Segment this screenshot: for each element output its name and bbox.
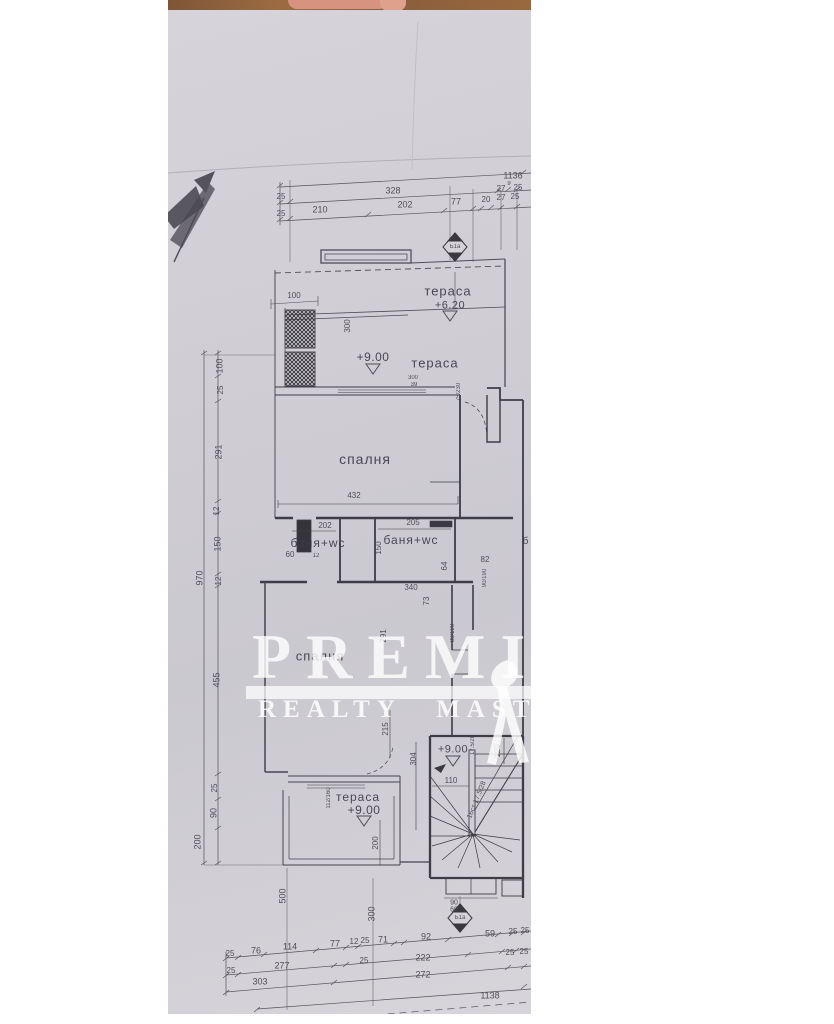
floorplan-photo: терасатерасаспалнябаня+wcбаня+wcспалняте… <box>168 0 531 1014</box>
lower-room-walls <box>265 582 430 865</box>
dim-label: 25 <box>227 967 236 975</box>
dim-label: 25 <box>509 928 518 936</box>
room-label: тераса <box>424 285 471 298</box>
level-label: +9.00 <box>348 804 381 816</box>
dim-label: 300 <box>344 319 352 332</box>
dim-label: 27 <box>497 185 506 193</box>
room-label: баня+wc <box>383 534 438 546</box>
room-label: тераса <box>336 791 380 803</box>
paper-creases <box>168 22 531 173</box>
dim-label: 12 <box>213 507 221 516</box>
dim-label: 25 <box>226 950 235 958</box>
floorplan-linework <box>168 10 531 1014</box>
dim-label: 328 <box>385 187 400 196</box>
dim-label: 25 <box>277 210 286 218</box>
finger-blob <box>288 0 388 9</box>
level-label: +9.00 <box>438 745 468 756</box>
section-marker-label: Б1а <box>455 915 466 921</box>
dim-label: 27 <box>497 194 506 202</box>
dim-label: 222 <box>415 954 430 963</box>
dim-label: 12 <box>215 577 223 586</box>
dim-label: 90 <box>210 808 219 818</box>
dim-label: 340 <box>404 584 417 592</box>
dim-label: 92 <box>421 933 431 942</box>
dim-label: 20 <box>482 196 491 204</box>
level-label: +9.00 <box>357 351 390 363</box>
top-dimension-lines <box>277 170 531 262</box>
dim-label: 64 <box>441 562 449 571</box>
dim-label: 500 <box>279 888 288 903</box>
photo-viewer-page: терасатерасаспалнябаня+wcбаня+wcспалняте… <box>0 0 834 1024</box>
room-label: спалня <box>296 650 345 663</box>
plan-drawing: терасатерасаспалнябаня+wcбаня+wcспалняте… <box>168 10 531 1014</box>
dim-label: 25 <box>277 193 286 201</box>
dim-label: 90/190 <box>482 569 488 587</box>
dim-label: 205 <box>406 519 419 527</box>
dim-label: 71 <box>378 936 388 945</box>
dim-label: 12 <box>350 938 359 946</box>
dim-label: 303 <box>252 978 267 987</box>
dim-label: 12 <box>313 553 320 559</box>
dim-label: 25 <box>211 784 219 793</box>
dim-label: 200 <box>194 834 203 849</box>
dim-label: 90 <box>450 900 458 907</box>
north-arrow-icon <box>168 171 215 262</box>
dim-label: 59 <box>485 930 495 939</box>
dim-label: 25 <box>361 937 370 945</box>
dim-label: 1136 <box>503 172 522 181</box>
dim-label: 210 <box>312 206 327 215</box>
dim-label: 25 <box>521 927 530 935</box>
dim-label: 112/160 <box>326 787 332 808</box>
dim-label: 455 <box>213 672 222 687</box>
dim-label: 76 <box>251 947 261 956</box>
dim-label: 75/230 <box>456 383 462 401</box>
dim-label: 100 <box>216 358 225 373</box>
dim-label: 100 <box>287 292 300 300</box>
dim-label: 215 <box>382 722 390 735</box>
room-label: тераса <box>411 357 458 370</box>
dim-label: 25 <box>360 957 369 965</box>
dim-label: 25 <box>514 184 523 192</box>
dim-label: 432 <box>347 492 360 500</box>
dim-label: 39 <box>411 382 418 388</box>
dim-label: 304 <box>410 752 418 765</box>
dim-label: 114 <box>283 943 297 952</box>
dim-label: 970 <box>196 570 205 585</box>
dim-label: 1138 <box>480 992 499 1001</box>
dim-label: 202 <box>318 522 331 530</box>
dim-label: 277 <box>274 962 289 971</box>
dim-label: 150 <box>214 536 223 551</box>
dim-label: 25 <box>217 386 225 395</box>
room-label: спалня <box>339 452 391 466</box>
dim-label: 60 <box>450 907 458 914</box>
dim-label: 110 <box>445 777 458 785</box>
dim-label: 60 <box>286 551 295 559</box>
dim-label: 300 <box>368 906 377 921</box>
dim-label: 291 <box>215 444 224 459</box>
dim-label: 77 <box>330 940 340 949</box>
blueprint-paper: терасатерасаспалнябаня+wcбаня+wcспалняте… <box>168 10 531 1014</box>
dim-label: 291 <box>380 629 388 642</box>
dim-label: 120 <box>494 744 502 757</box>
dim-label: 272 <box>415 971 430 980</box>
dim-label: 202 <box>397 201 412 210</box>
section-marker-label: Б1а <box>450 244 461 250</box>
dim-label: 25 <box>506 949 515 957</box>
dim-label: 150 <box>375 541 383 554</box>
room-label: баня+wc <box>290 537 345 549</box>
dim-label: 9 <box>507 181 510 187</box>
level-label: +6.20 <box>435 301 465 312</box>
room-label: б <box>523 537 530 547</box>
dim-label: 300 <box>408 375 418 381</box>
dim-label: 17.5/28 <box>470 735 476 755</box>
dim-label: 73 <box>423 597 431 606</box>
dim-label: 80/190 <box>450 624 456 642</box>
dim-label: 77 <box>451 198 461 207</box>
dim-label: 200 <box>372 836 380 849</box>
dim-label: 25 <box>511 193 520 201</box>
dim-label: 82 <box>481 556 490 564</box>
dim-label: 25 <box>520 948 529 956</box>
